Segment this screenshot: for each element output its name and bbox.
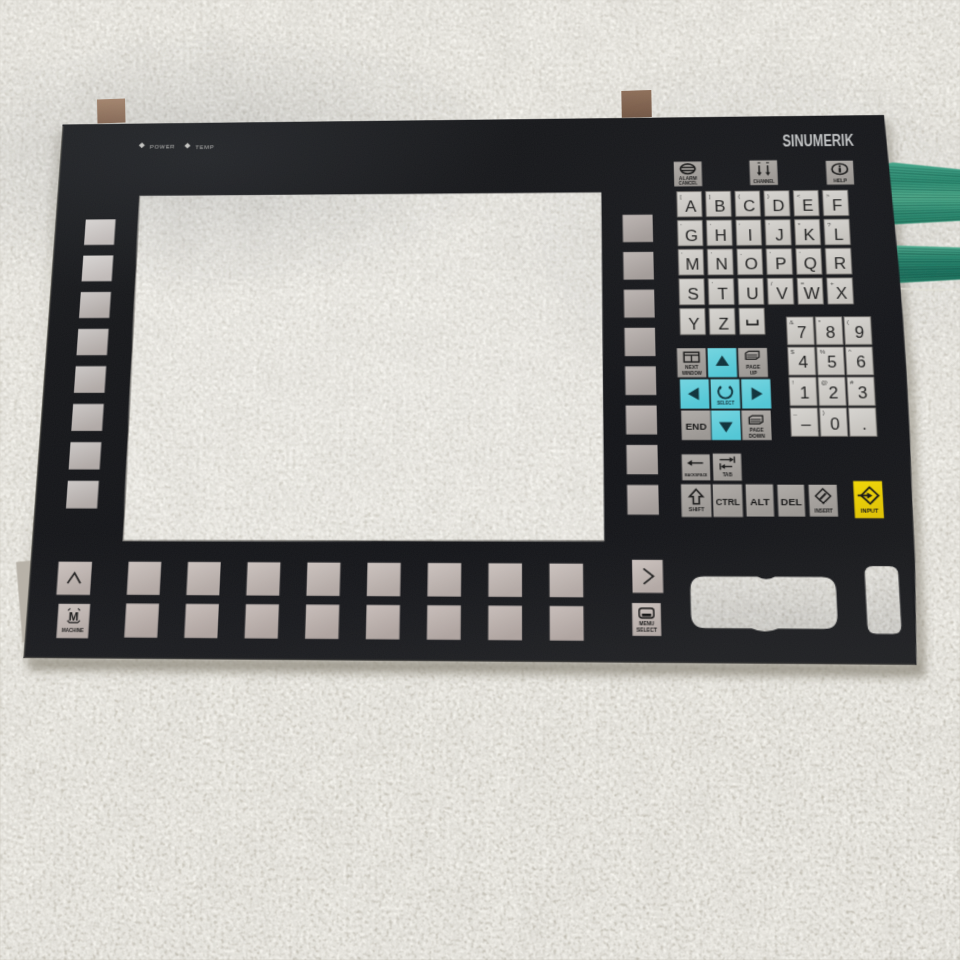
svg-text:U: U [746,285,759,303]
svg-text:L: L [833,226,843,244]
svg-text:H: H [715,227,728,245]
svg-text:S: S [687,286,699,304]
svg-text:4: 4 [798,354,808,372]
svg-text:HELP: HELP [834,178,848,183]
svg-text:Q: Q [803,256,817,274]
svg-text:SELECT: SELECT [717,400,735,405]
svg-text:UP: UP [750,370,757,375]
svg-text:V: V [776,285,788,303]
svg-text:POWER: POWER [150,145,176,151]
svg-text:9: 9 [854,324,865,342]
svg-text:Z: Z [718,315,729,333]
svg-text:': ' [711,252,712,258]
svg-text:W: W [803,285,821,303]
svg-text:CANCEL: CANCEL [679,181,698,186]
svg-text:M: M [68,610,79,624]
svg-text:B: B [714,198,726,215]
svg-text:6: 6 [856,354,867,372]
svg-text:': ' [711,282,712,288]
svg-text:P: P [775,256,787,274]
svg-text:MACHINE: MACHINE [62,627,84,633]
svg-text:): ) [822,411,825,418]
svg-text:&: & [789,320,794,326]
svg-text:SELECT: SELECT [636,627,657,633]
svg-text:': ' [681,252,682,258]
svg-text:C: C [743,198,756,215]
svg-text:E: E [802,197,814,215]
svg-text:D: D [772,198,785,216]
svg-text:-: - [740,252,742,258]
svg-text:A: A [685,198,697,215]
svg-text:3: 3 [857,384,868,403]
svg-text:7: 7 [797,324,807,342]
svg-text:(: ( [847,319,850,325]
svg-text:5: 5 [827,354,837,372]
svg-text:CHANNEL: CHANNEL [753,179,775,184]
svg-text:': ' [710,223,711,229]
svg-text:2: 2 [828,384,839,403]
svg-text:DOWN: DOWN [749,433,765,438]
svg-text:TAB: TAB [723,472,733,478]
svg-text:K: K [803,226,815,244]
svg-text:8: 8 [825,324,835,342]
svg-text:R: R [834,255,847,273]
svg-text:SINUMERIK: SINUMERIK [782,132,854,151]
svg-text:END: END [685,421,706,432]
svg-text:DEL: DEL [781,496,803,507]
svg-text:%: % [819,350,825,356]
svg-text:INSERT: INSERT [814,508,833,514]
svg-text:?: ? [827,222,831,228]
svg-text:WINDOW: WINDOW [682,370,703,375]
svg-text:): ) [767,194,769,200]
svg-text:': ' [681,223,682,229]
svg-text:M: M [685,256,699,274]
svg-text:': ' [769,252,770,258]
svg-text:': ' [768,223,769,229]
svg-text:CTRL: CTRL [716,496,741,507]
svg-text:ALT: ALT [750,496,771,507]
svg-text:.: . [861,415,867,434]
svg-text:': ' [739,223,740,229]
svg-text:J: J [775,227,784,245]
svg-text:N: N [715,256,728,274]
svg-text:T: T [717,286,728,304]
svg-text:BACKSPACE: BACKSPACE [685,472,708,478]
svg-text:O: O [744,256,758,274]
svg-text:SHIFT: SHIFT [689,507,705,513]
svg-text:1: 1 [799,384,809,402]
svg-text:Y: Y [688,316,700,334]
svg-text:0: 0 [830,415,841,434]
svg-text:(: ( [738,194,740,200]
svg-text:TEMP: TEMP [195,145,214,151]
svg-text:': ' [799,252,801,258]
svg-text:F: F [832,197,843,215]
svg-text:I: I [748,227,753,245]
svg-text:G: G [685,227,698,245]
svg-text:@: @ [821,380,828,387]
svg-text:–: – [801,415,812,434]
svg-text:INPUT: INPUT [861,508,879,515]
svg-text:X: X [836,285,848,303]
